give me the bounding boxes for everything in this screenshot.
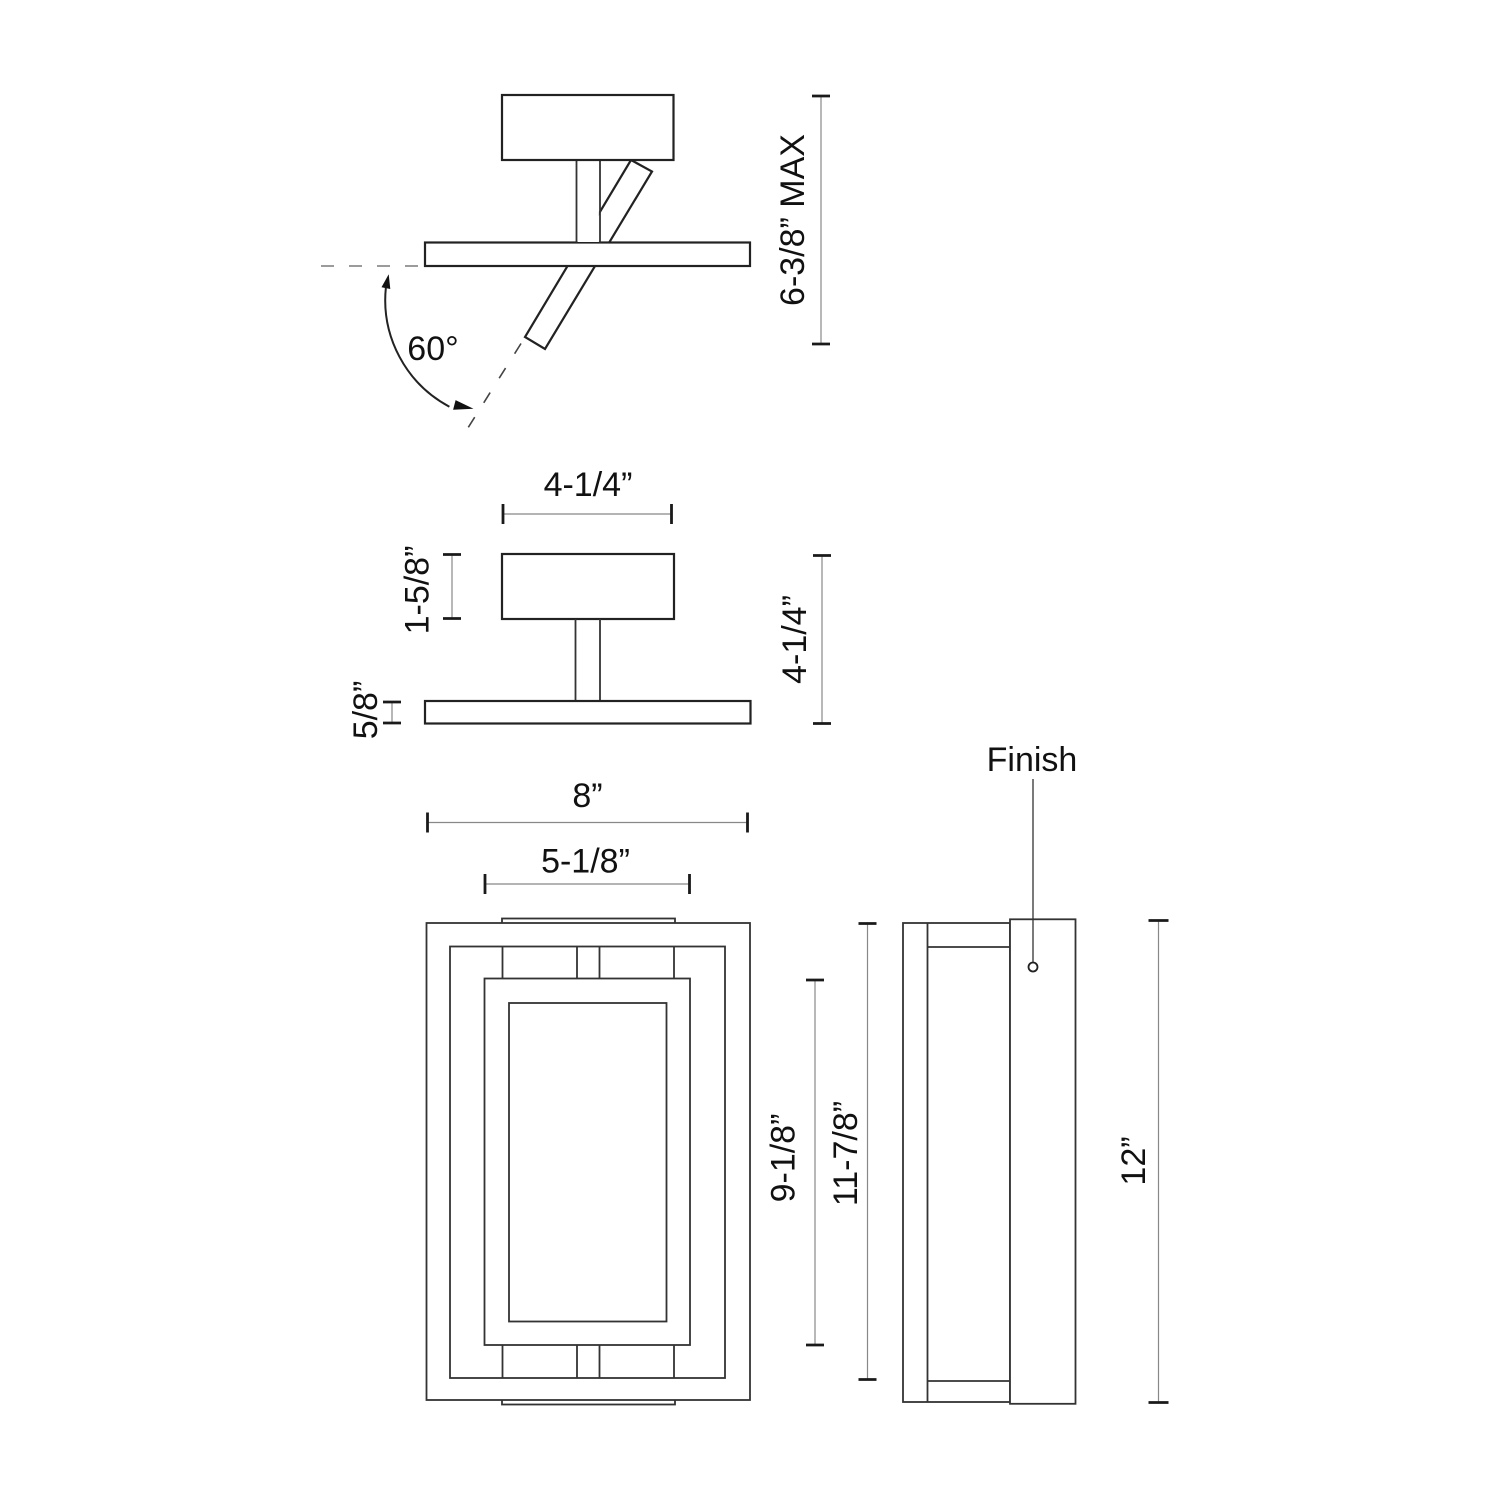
svg-text:4-1/4”: 4-1/4” — [776, 595, 814, 684]
svg-text:12”: 12” — [1115, 1136, 1153, 1185]
svg-text:1-5/8”: 1-5/8” — [399, 546, 437, 635]
svg-text:Finish: Finish — [987, 741, 1078, 779]
svg-text:8”: 8” — [572, 777, 602, 815]
svg-text:4-1/4”: 4-1/4” — [544, 466, 633, 504]
svg-text:6-3/8” MAX: 6-3/8” MAX — [774, 134, 812, 306]
svg-text:11-7/8”: 11-7/8” — [827, 1101, 865, 1206]
svg-text:9-1/8”: 9-1/8” — [765, 1114, 803, 1203]
svg-text:5-1/8”: 5-1/8” — [541, 843, 630, 881]
svg-text:5/8”: 5/8” — [347, 681, 385, 740]
svg-text:60°: 60° — [407, 330, 458, 368]
